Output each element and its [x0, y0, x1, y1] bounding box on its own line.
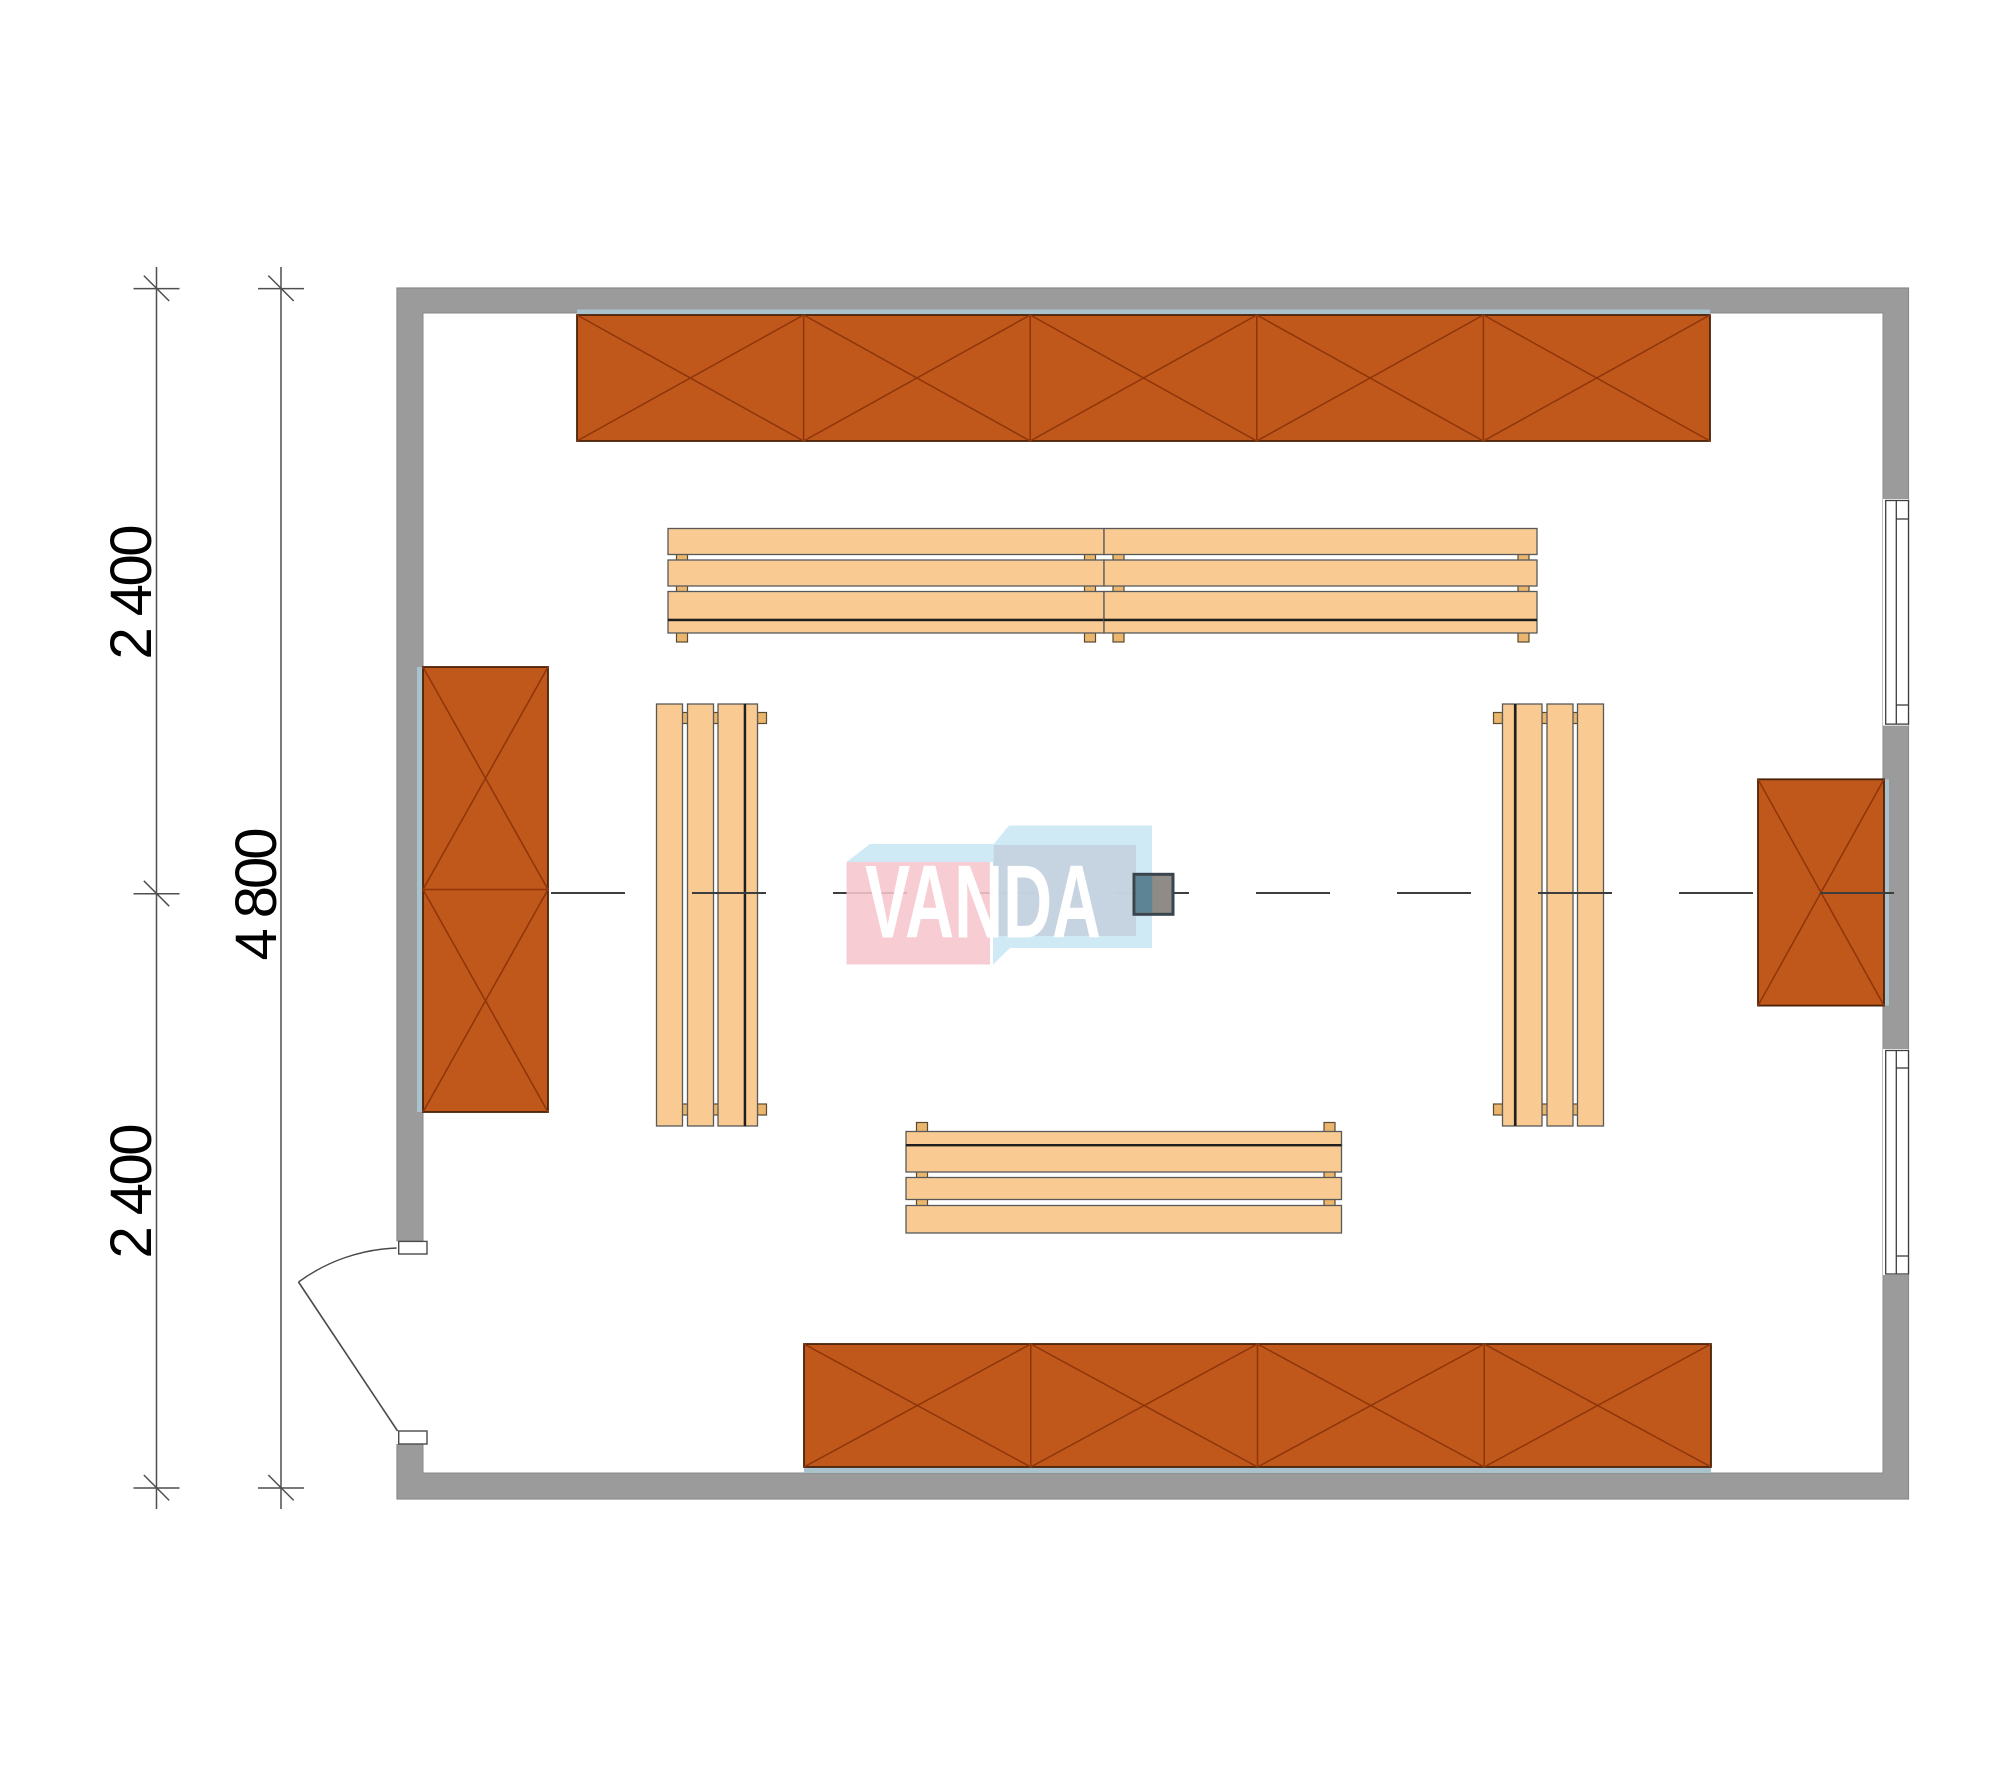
svg-text:4 800: 4 800: [224, 828, 289, 961]
svg-text:VANDA: VANDA: [865, 845, 1101, 961]
svg-text:2 400: 2 400: [99, 525, 164, 660]
svg-text:2 400: 2 400: [99, 1124, 164, 1259]
